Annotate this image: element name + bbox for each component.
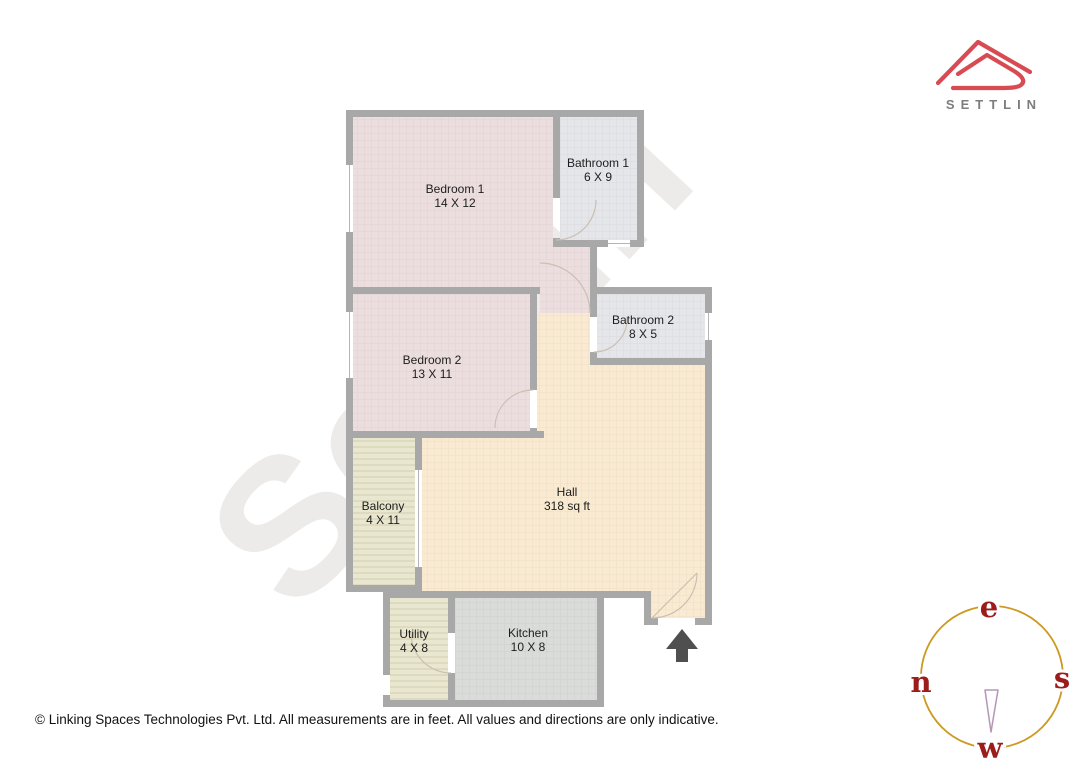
- settlin-roof-icon: [938, 42, 1030, 88]
- floorplan-page: Settlin: [0, 0, 1080, 764]
- compass: e n s w: [910, 590, 1070, 764]
- compass-direction-east: e: [980, 590, 998, 624]
- copyright-note: © Linking Spaces Technologies Pvt. Ltd. …: [35, 712, 719, 727]
- floorplan-scene: Settlin: [0, 0, 1080, 764]
- room-label-kitchen: Kitchen10 X 8: [508, 626, 548, 654]
- room-label-balcony: Balcony4 X 11: [362, 499, 405, 527]
- compass-direction-south: s: [1054, 661, 1070, 695]
- brand-name: SETTLIN: [946, 97, 1042, 112]
- entrance-arrow-icon: [666, 629, 698, 662]
- compass-direction-north: n: [910, 665, 931, 699]
- settlin-logo: SETTLIN: [938, 42, 1042, 112]
- compass-needle-icon: [985, 690, 998, 732]
- compass-direction-west: w: [977, 731, 1004, 764]
- room-label-utility: Utility4 X 8: [399, 627, 428, 655]
